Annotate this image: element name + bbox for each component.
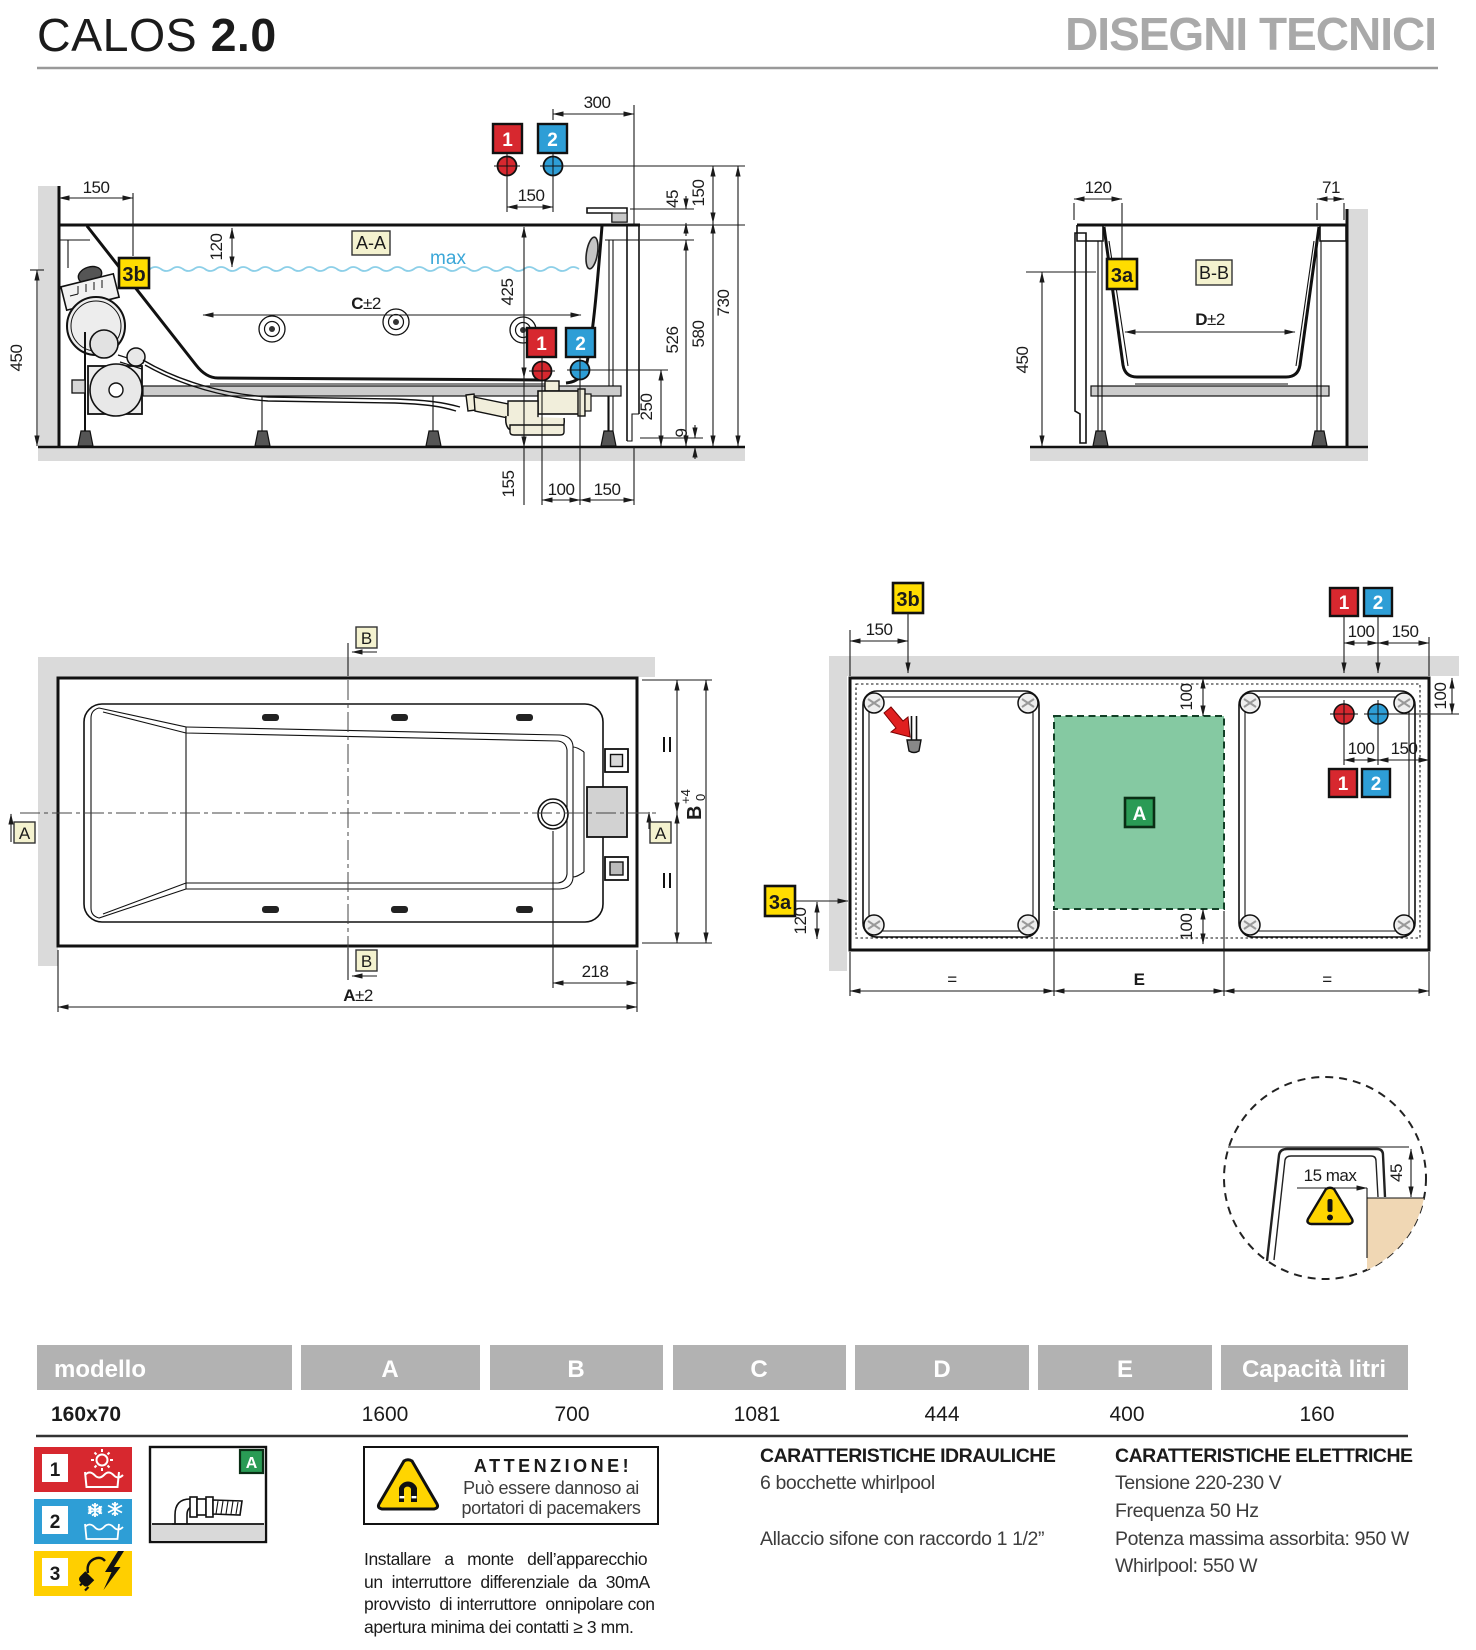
svg-text:100: 100 bbox=[1348, 739, 1375, 758]
svg-text:0: 0 bbox=[693, 794, 708, 801]
svg-text:C: C bbox=[750, 1356, 767, 1383]
svg-text:150: 150 bbox=[689, 180, 708, 207]
svg-text:120: 120 bbox=[791, 908, 810, 935]
svg-text:100: 100 bbox=[1177, 914, 1196, 941]
svg-text:CARATTERISTICHE IDRAULICHE: CARATTERISTICHE IDRAULICHE bbox=[760, 1445, 1056, 1467]
svg-text:Potenza massima assorbita: 950: Potenza massima assorbita: 950 W bbox=[1115, 1528, 1410, 1550]
svg-text:3b: 3b bbox=[122, 264, 145, 286]
svg-text:120: 120 bbox=[1085, 178, 1112, 197]
svg-text:3: 3 bbox=[50, 1564, 61, 1585]
svg-text:1: 1 bbox=[50, 1460, 61, 1481]
svg-text:CALOS 2.0: CALOS 2.0 bbox=[37, 9, 277, 61]
svg-text:160: 160 bbox=[1299, 1403, 1334, 1426]
svg-text:1: 1 bbox=[1338, 774, 1349, 795]
svg-text:1: 1 bbox=[1339, 593, 1350, 614]
svg-text:DISEGNI TECNICI: DISEGNI TECNICI bbox=[1065, 8, 1436, 60]
svg-text:160x70: 160x70 bbox=[51, 1403, 121, 1426]
svg-text:A-A: A-A bbox=[356, 233, 386, 253]
svg-text:580: 580 bbox=[689, 321, 708, 348]
svg-text:portatori di pacemakers: portatori di pacemakers bbox=[462, 1498, 641, 1518]
svg-text:1: 1 bbox=[502, 130, 513, 151]
svg-text:2: 2 bbox=[1371, 774, 1382, 795]
svg-text:450: 450 bbox=[7, 345, 26, 372]
svg-text:450: 450 bbox=[1013, 347, 1032, 374]
svg-text:3a: 3a bbox=[1111, 265, 1134, 287]
svg-text:D: D bbox=[933, 1356, 950, 1383]
svg-text:E: E bbox=[1134, 970, 1145, 989]
svg-text:1600: 1600 bbox=[362, 1403, 409, 1426]
svg-text:155: 155 bbox=[499, 471, 518, 498]
svg-text:218: 218 bbox=[582, 962, 609, 981]
svg-text:CARATTERISTICHE ELETTRICHE: CARATTERISTICHE ELETTRICHE bbox=[1115, 1445, 1413, 1467]
svg-text:45: 45 bbox=[1387, 1164, 1406, 1182]
svg-text:A: A bbox=[19, 824, 31, 843]
svg-text:+4: +4 bbox=[678, 789, 693, 804]
svg-text:425: 425 bbox=[498, 279, 517, 306]
svg-text:1081: 1081 bbox=[734, 1403, 781, 1426]
svg-text:Può essere dannoso ai: Può essere dannoso ai bbox=[463, 1478, 639, 1498]
svg-text:C±2: C±2 bbox=[351, 294, 381, 313]
svg-text:un interruttore differenzial: un interruttore differenziale da 30mA bbox=[364, 1572, 651, 1592]
svg-text:1: 1 bbox=[536, 334, 547, 355]
svg-text:100: 100 bbox=[1348, 622, 1375, 641]
svg-text:Tensione 220-230 V: Tensione 220-230 V bbox=[1115, 1472, 1282, 1494]
svg-text:E: E bbox=[1117, 1356, 1133, 1383]
svg-text:71: 71 bbox=[1322, 178, 1340, 197]
svg-text:A±2: A±2 bbox=[343, 986, 373, 1005]
svg-text:526: 526 bbox=[663, 327, 682, 354]
svg-text:B: B bbox=[361, 629, 372, 648]
svg-text:B: B bbox=[361, 952, 372, 971]
svg-text:730: 730 bbox=[714, 290, 733, 317]
svg-text:300: 300 bbox=[584, 93, 611, 112]
svg-text:150: 150 bbox=[518, 186, 545, 205]
svg-text:150: 150 bbox=[866, 620, 893, 639]
svg-text:provvisto di interruttore on: provvisto di interruttore onnipolare con bbox=[364, 1594, 655, 1614]
svg-text:Capacità litri: Capacità litri bbox=[1242, 1356, 1386, 1383]
svg-text:100: 100 bbox=[1431, 683, 1450, 710]
svg-text:100: 100 bbox=[1177, 684, 1196, 711]
svg-text:max: max bbox=[430, 248, 466, 269]
svg-text:700: 700 bbox=[554, 1403, 589, 1426]
svg-text:444: 444 bbox=[924, 1403, 959, 1426]
svg-text:B-B: B-B bbox=[1199, 263, 1229, 283]
svg-text:9: 9 bbox=[672, 428, 691, 437]
svg-text:A: A bbox=[246, 1455, 258, 1472]
svg-text:B: B bbox=[567, 1356, 584, 1383]
svg-text:2: 2 bbox=[1373, 593, 1384, 614]
svg-text:400: 400 bbox=[1109, 1403, 1144, 1426]
svg-text:6 bocchette whirlpool: 6 bocchette whirlpool bbox=[760, 1472, 935, 1494]
svg-text:A: A bbox=[381, 1356, 398, 1383]
svg-text:2: 2 bbox=[50, 1512, 61, 1533]
svg-text:150: 150 bbox=[594, 480, 621, 499]
svg-text:apertura minima dei contatti ≥: apertura minima dei contatti ≥ 3 mm. bbox=[364, 1617, 633, 1637]
svg-text:A: A bbox=[655, 824, 667, 843]
svg-text:45: 45 bbox=[663, 190, 682, 208]
svg-text:150: 150 bbox=[1392, 622, 1419, 641]
svg-text:ATTENZIONE!: ATTENZIONE! bbox=[474, 1456, 632, 1476]
svg-text:2: 2 bbox=[547, 130, 558, 151]
svg-text:=: = bbox=[947, 970, 957, 989]
svg-text:3b: 3b bbox=[896, 589, 919, 611]
svg-text:=: = bbox=[1322, 970, 1332, 989]
svg-text:15 max: 15 max bbox=[1304, 1166, 1358, 1185]
svg-text:100: 100 bbox=[548, 480, 575, 499]
svg-text:150: 150 bbox=[1391, 739, 1418, 758]
svg-text:Allaccio sifone con raccordo 1: Allaccio sifone con raccordo 1 1/2” bbox=[760, 1528, 1044, 1550]
svg-text:Frequenza 50 Hz: Frequenza 50 Hz bbox=[1115, 1500, 1259, 1522]
svg-text:B: B bbox=[684, 806, 706, 820]
svg-text:150: 150 bbox=[83, 178, 110, 197]
svg-text:120: 120 bbox=[207, 234, 226, 261]
svg-text:250: 250 bbox=[637, 394, 656, 421]
svg-text:D±2: D±2 bbox=[1195, 310, 1225, 329]
svg-text:2: 2 bbox=[575, 334, 586, 355]
svg-text:modello: modello bbox=[54, 1356, 146, 1383]
svg-text:Whirlpool: 550 W: Whirlpool: 550 W bbox=[1115, 1555, 1258, 1577]
svg-text:3a: 3a bbox=[769, 892, 792, 914]
svg-text:A: A bbox=[1133, 804, 1147, 825]
svg-text:Installare a monte dell’: Installare a monte dell’apparecchio bbox=[364, 1549, 647, 1569]
